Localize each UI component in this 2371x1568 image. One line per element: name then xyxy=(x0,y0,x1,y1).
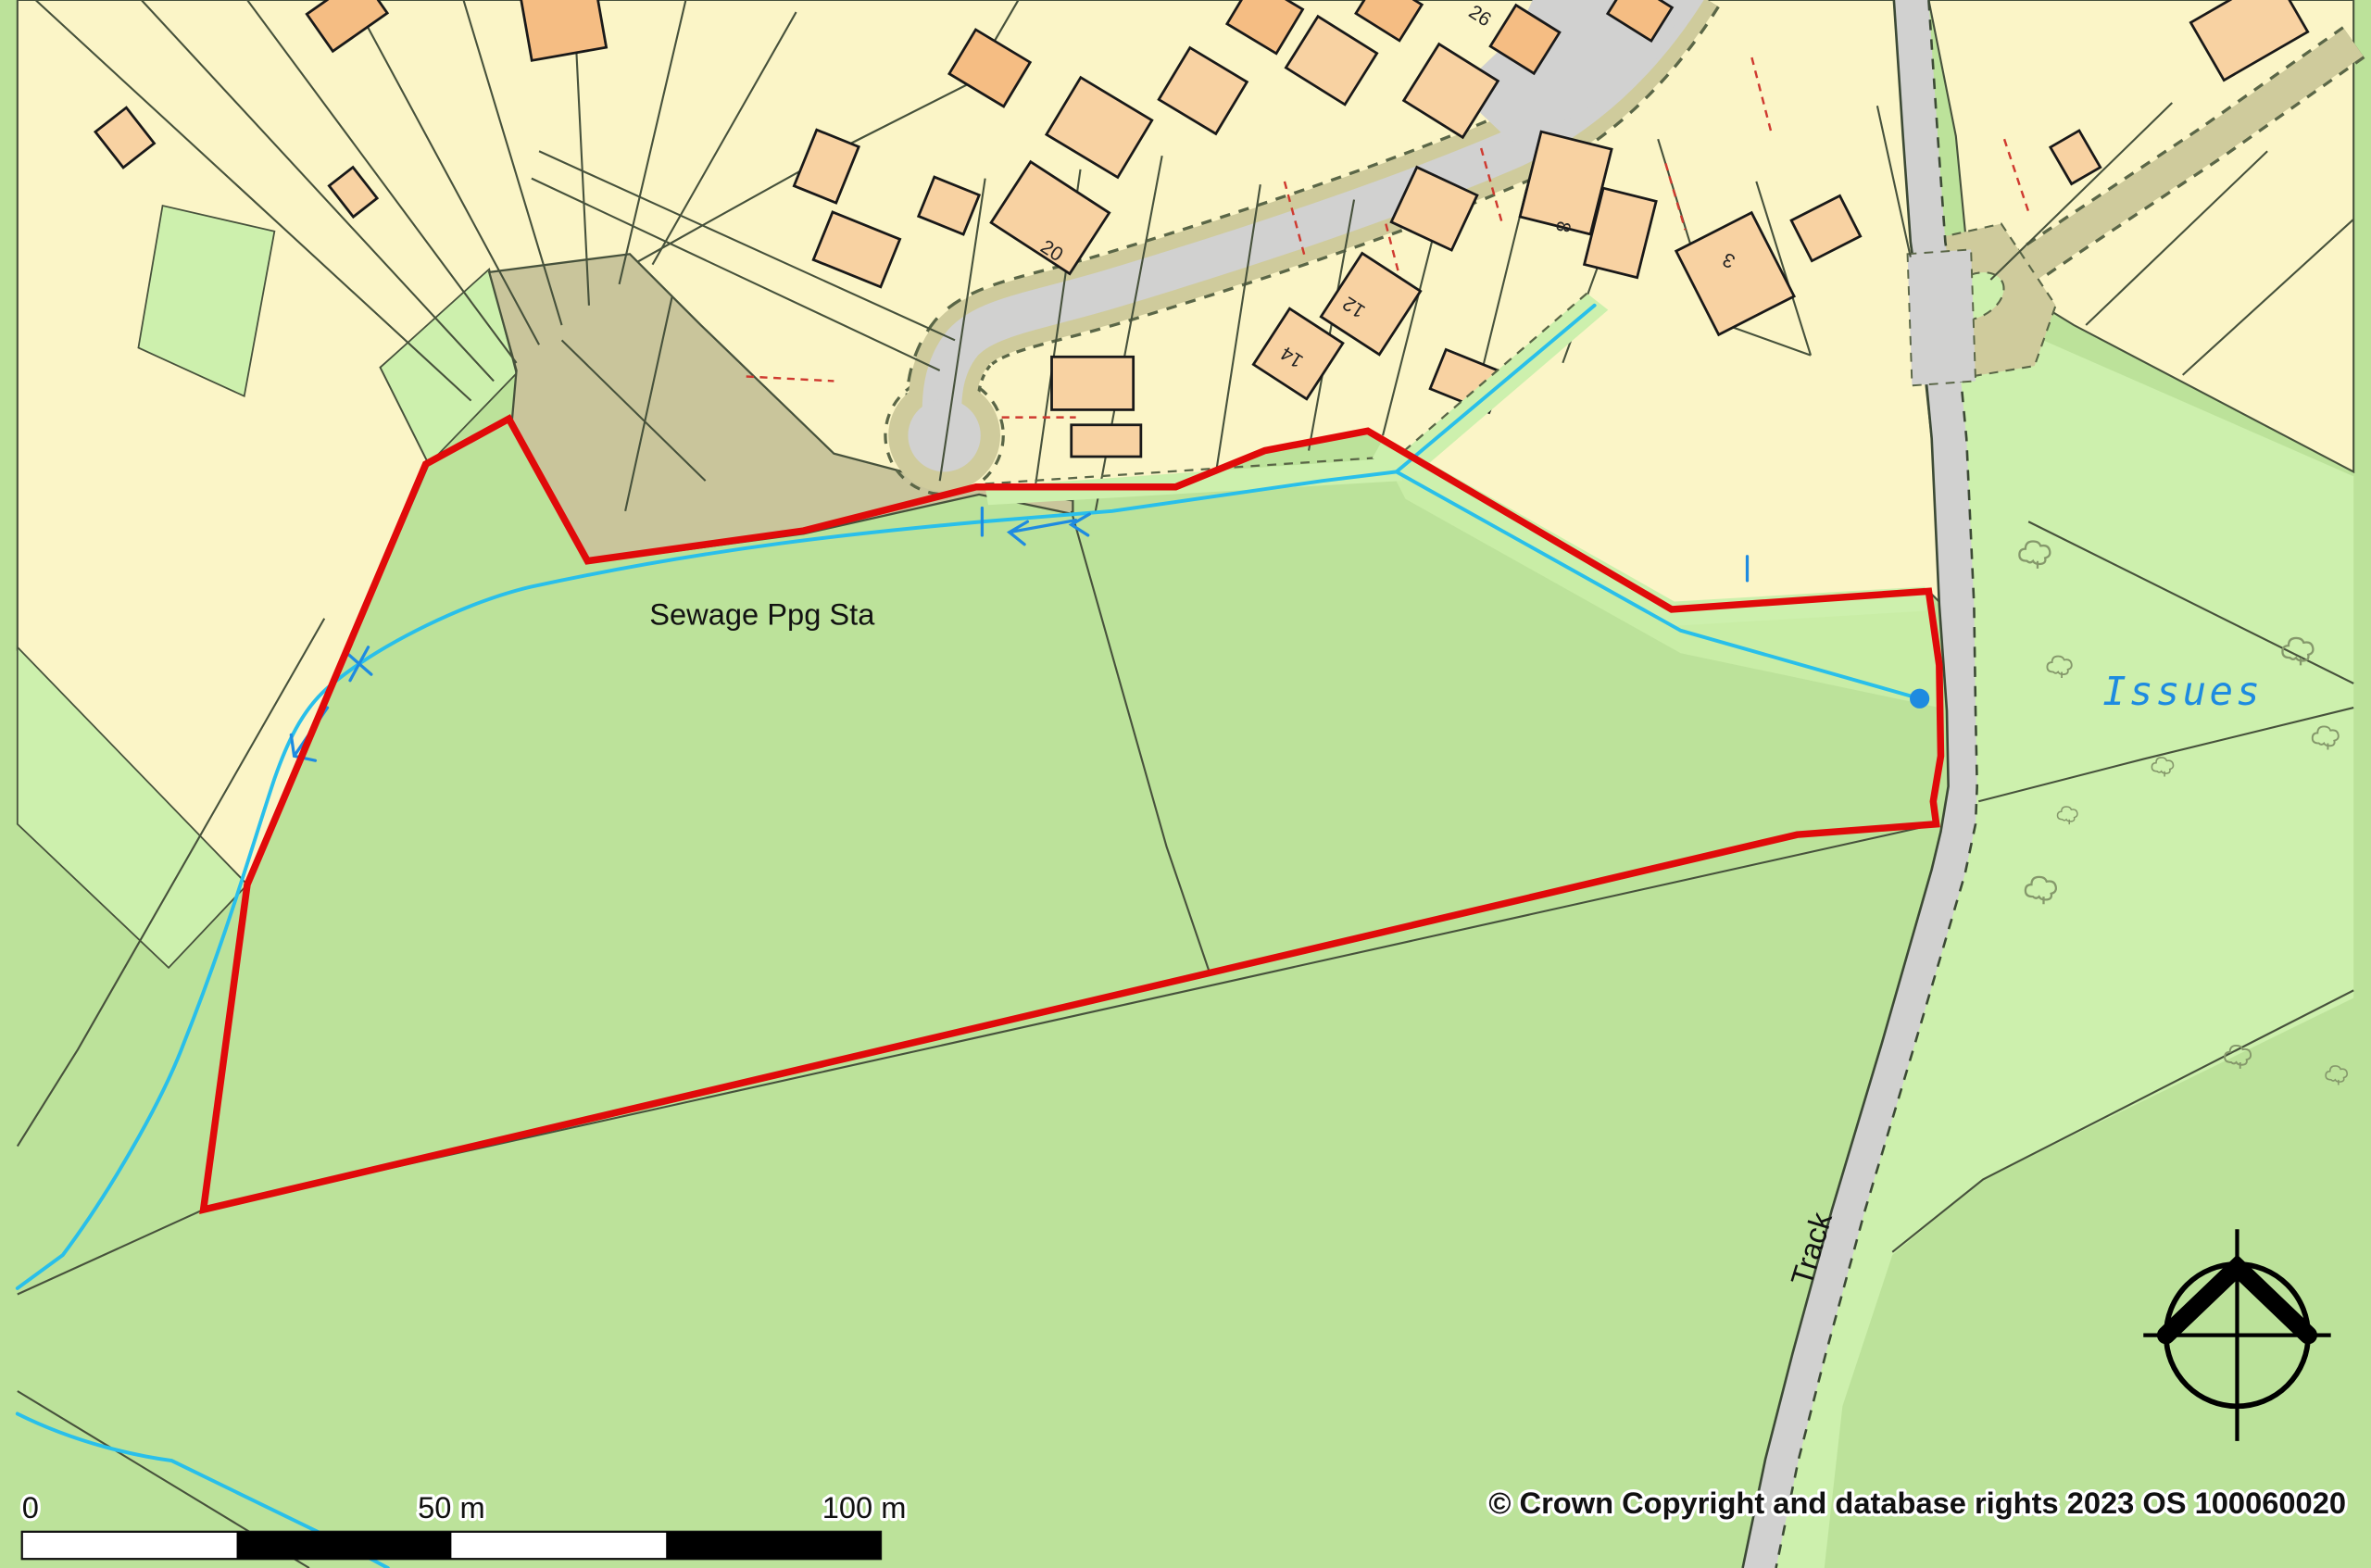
track-hammerhead xyxy=(1908,249,1976,385)
os-site-map: Sewage Ppg Sta Issues Track 26 20 14 12 … xyxy=(0,0,2371,1568)
copyright-attribution: © Crown Copyright and database rights 20… xyxy=(1488,1486,2346,1520)
building xyxy=(1052,357,1134,409)
scale-zero: 0 xyxy=(22,1490,39,1524)
scale-hundred: 100 m xyxy=(822,1490,907,1524)
spring-dot xyxy=(1910,689,1929,709)
scale-fifty: 50 m xyxy=(418,1490,485,1524)
issues-label: Issues xyxy=(2102,670,2263,715)
building xyxy=(1072,425,1141,457)
map-viewport: Sewage Ppg Sta Issues Track 26 20 14 12 … xyxy=(0,0,2371,1568)
sewage-station-label: Sewage Ppg Sta xyxy=(649,596,875,631)
